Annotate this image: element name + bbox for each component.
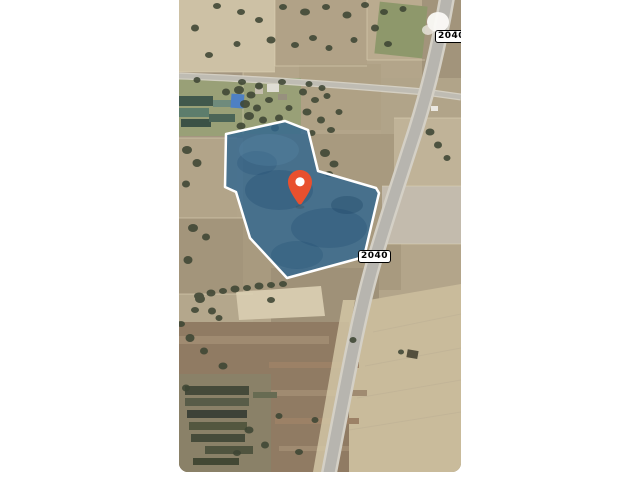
marker-shadow [296, 205, 305, 209]
satellite-map-image[interactable]: 2040 2040 [179, 0, 461, 472]
pin-hole [295, 177, 304, 186]
route-shield-2040-top: 2040 [435, 30, 461, 43]
satellite-imagery [179, 0, 461, 472]
route-shield-2040-mid: 2040 [358, 250, 391, 263]
